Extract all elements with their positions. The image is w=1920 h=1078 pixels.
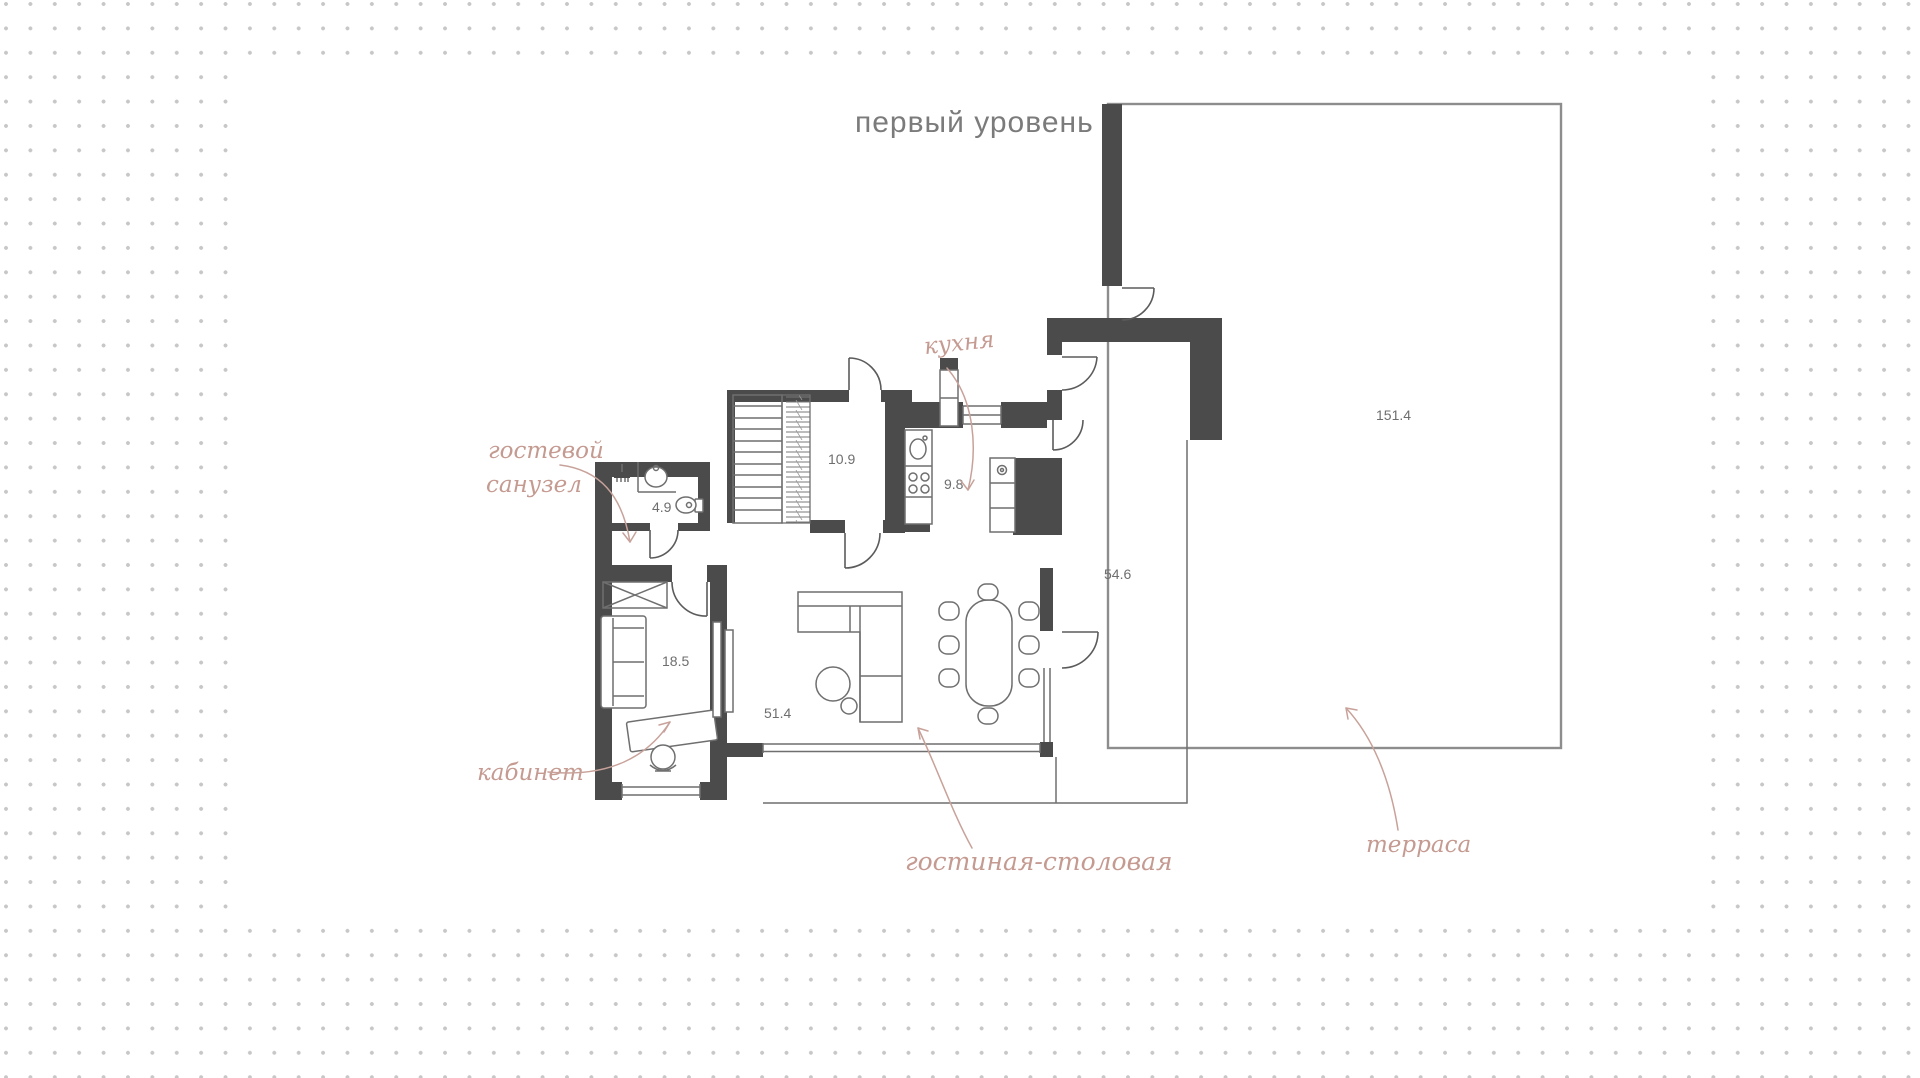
kitchen-right-counter [990,458,1015,532]
staircase [733,395,782,523]
tall-cabinet [940,358,958,426]
desk [626,710,717,752]
office-closet [603,582,667,608]
dining-table [966,600,1012,706]
area-value-terrace: 151.4 [1376,407,1411,423]
room-label-guest-wc-line2: санузел [486,472,582,498]
room-label-terrace: терраса [1366,832,1471,858]
office-sofa [601,616,646,708]
floor-plan: первый уровень [440,80,1600,920]
wardrobe-hatch [782,395,810,523]
living-window-band [763,743,1040,753]
area-value-entry-hall: 10.9 [828,451,855,467]
room-label-kitchen: кухня [923,327,996,360]
area-value-living-dining: 51.4 [764,705,791,721]
room-label-guest-wc-line1: гостевой [488,438,604,464]
office-window [622,782,700,800]
living-right-glass [1044,668,1050,742]
round-armchair [816,667,857,714]
room-label-living-dining: гостиная-столовая [905,847,1173,876]
page-title: первый уровень [855,106,1094,139]
office-chair [650,745,676,771]
toilet-icon [676,497,703,513]
area-value-kitchen: 9.8 [944,476,964,492]
area-value-hall-zone: 54.6 [1104,566,1131,582]
area-value-guest-wc: 4.9 [652,499,672,515]
area-value-office: 18.5 [662,653,689,669]
